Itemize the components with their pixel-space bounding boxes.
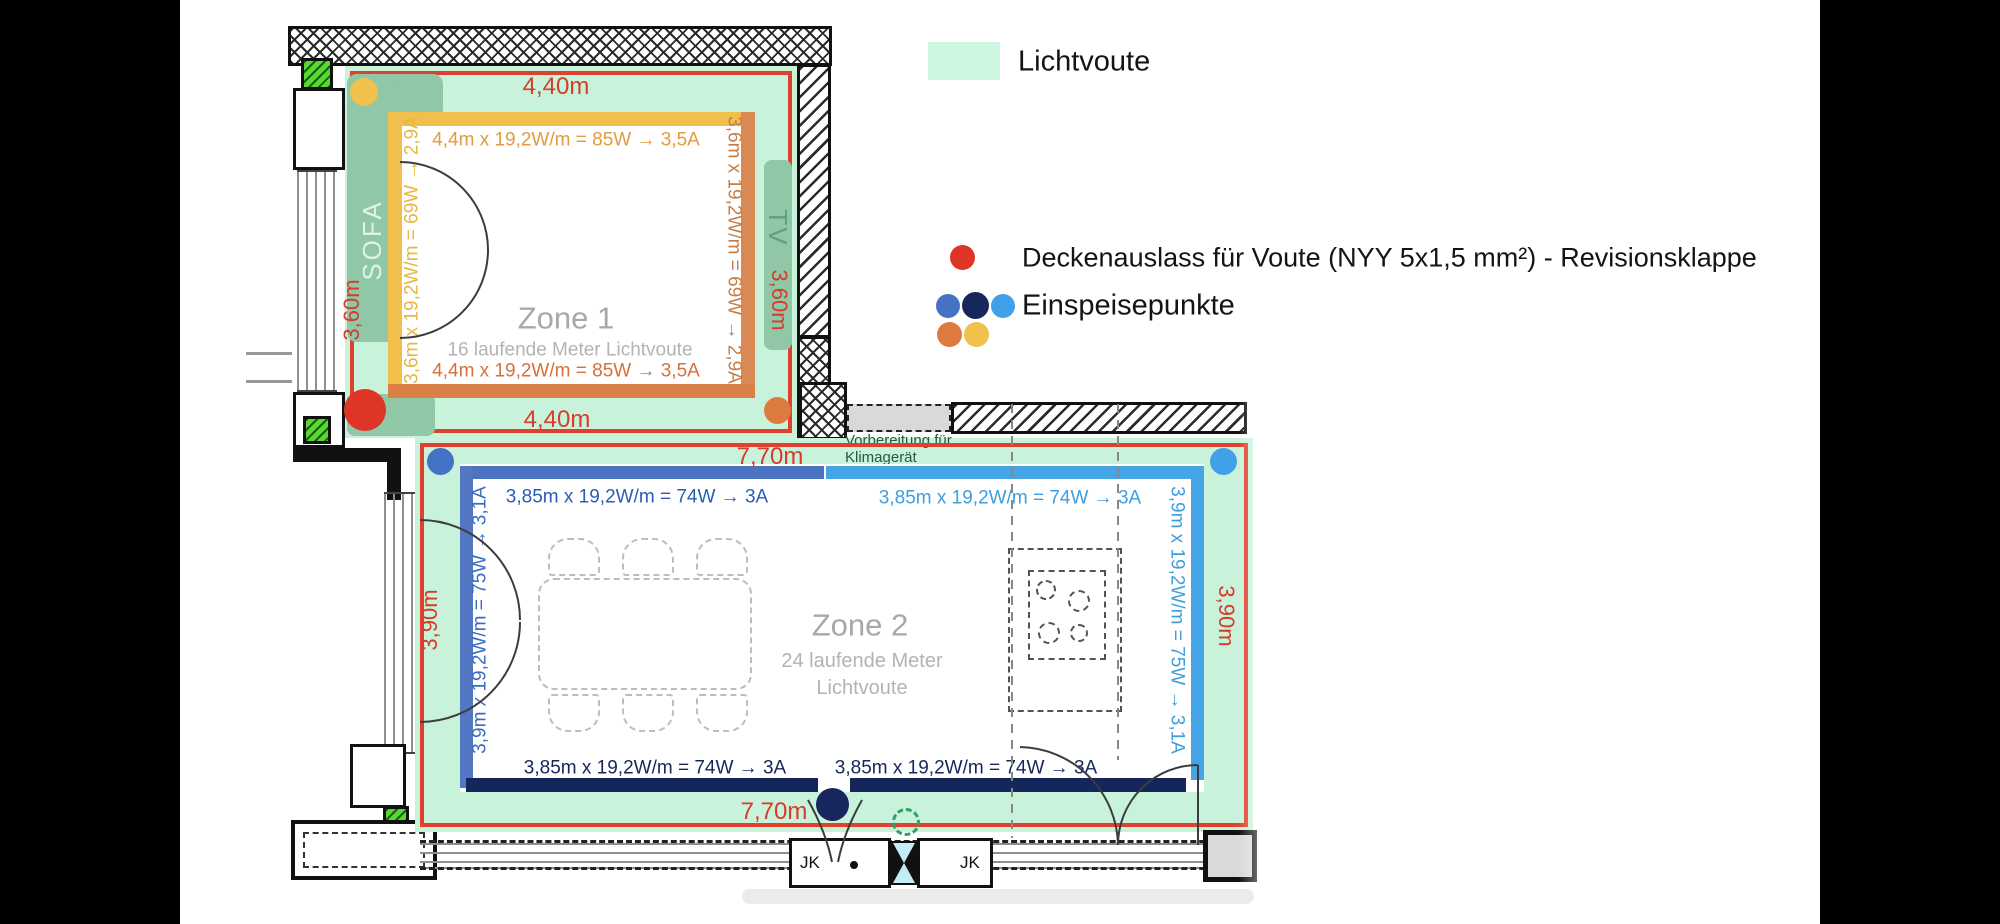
dining-table <box>538 578 752 690</box>
jk-label-1: JK <box>800 853 820 873</box>
bowtie-marker <box>891 841 917 885</box>
zone1-led-top <box>388 112 755 126</box>
zone2-subtitle-line2: Lichtvoute <box>816 678 907 698</box>
legend-deckenauslass-dot <box>950 245 975 270</box>
einspeisepunkt-orange <box>764 397 791 424</box>
zone2-led-bottom-right <box>850 778 1186 792</box>
chair <box>696 538 748 576</box>
zone2-subtitle-line1: 24 laufende Meter <box>781 651 942 671</box>
zone2-led-right <box>1191 466 1204 780</box>
sofa-label: SOFA <box>359 199 385 280</box>
zone2-power-top-right: 3,85m x 19,2W/m = 74W → 3A <box>879 489 1141 508</box>
zone2-left-window <box>384 492 416 754</box>
zone2-title: Zone 2 <box>812 610 909 641</box>
jk-box-2: JK <box>917 838 993 888</box>
legend-lichtvoute-swatch <box>928 42 1000 80</box>
zone1-power-bottom: 4,4m x 19,2W/m = 85W → 3,5A <box>432 362 700 381</box>
chair <box>622 694 674 732</box>
zone1-dim-left: 3,60m <box>341 279 363 340</box>
zone1-dim-bottom: 4,40m <box>524 408 591 432</box>
wall-tick-1 <box>246 352 292 355</box>
legend-feed-dot-lightblue <box>991 294 1015 318</box>
zone1-dim-right: 3,60m <box>768 269 790 330</box>
dashed-circle-marker <box>892 808 920 836</box>
zone1-left-closet <box>293 88 345 170</box>
burner <box>1038 622 1060 644</box>
einspeisepunkt-yellow <box>350 78 378 106</box>
zone1-power-left: 3,6m x 19,2W/m = 69W → 2,9A <box>403 116 422 384</box>
step-wall-h <box>293 448 401 462</box>
zone1-power-right: 3,6m x 19,2W/m = 69W → 2,9A <box>725 116 744 384</box>
burner <box>1070 624 1088 642</box>
zone2-power-bottom-left: 3,85m x 19,2W/m = 74W → 3A <box>524 759 786 778</box>
zone2-left-closet <box>350 744 406 808</box>
chair <box>548 694 600 732</box>
wall-tick-2 <box>246 380 292 383</box>
zone2-led-top-right <box>826 466 1204 479</box>
column-top-left <box>301 58 333 90</box>
einspeisepunkt-navy <box>816 788 849 821</box>
zone2-top-wall <box>951 402 1247 434</box>
zone1-dim-top: 4,40m <box>523 75 590 99</box>
burner <box>1036 580 1056 600</box>
column-mid-left <box>303 416 331 444</box>
zone2-power-right: 3,9m x 19,2W/m = 75W → 3,1A <box>1168 486 1187 754</box>
legend-feed-dot-yellow <box>964 322 989 347</box>
legend-feed-dot-blue <box>936 294 960 318</box>
zone1-title: Zone 1 <box>518 303 615 334</box>
zone2-dim-top: 7,70m <box>737 445 804 469</box>
jk-box-1: JK <box>789 838 891 888</box>
plan-fade <box>1238 380 1308 890</box>
tv-label: TV <box>765 209 791 246</box>
red-border-patch <box>843 443 958 447</box>
zone1-led-bottom <box>388 384 755 398</box>
legend-feed-dot-navy <box>962 292 989 319</box>
letterbox-left <box>0 0 180 924</box>
zone2-led-bottom-left <box>466 778 818 792</box>
door-pivot-dot <box>850 861 858 869</box>
legend-einspeisepunkte-label: Einspeisepunkte <box>1022 292 1235 321</box>
progress-bar[interactable] <box>742 889 1254 904</box>
jk-label-2: JK <box>960 853 980 873</box>
chimney-column <box>799 382 847 440</box>
zone1-power-top: 4,4m x 19,2W/m = 85W → 3,5A <box>432 131 700 150</box>
einspeisepunkt-blue <box>427 448 454 475</box>
burner <box>1068 590 1090 612</box>
chair <box>696 694 748 732</box>
zone1-top-wall <box>288 26 832 66</box>
letterbox-right <box>1820 0 2000 924</box>
legend-deckenauslass-label: Deckenauslass für Voute (NYY 5x1,5 mm²) … <box>1022 245 1757 272</box>
zone2-dim-bottom: 7,70m <box>741 800 808 824</box>
zone1-right-wall <box>797 64 831 338</box>
bowtie-icon <box>893 843 915 883</box>
zone2-power-bottom-right: 3,85m x 19,2W/m = 74W → 3A <box>835 759 1097 778</box>
klimageraet-prep-box <box>847 404 951 432</box>
chair <box>548 538 600 576</box>
zone2-dim-right: 3,90m <box>1215 585 1237 646</box>
zone1-left-window <box>297 170 337 392</box>
zone1-subtitle: 16 laufende Meter Lichtvoute <box>447 341 692 360</box>
floorplan-slide: 4,40m 4,40m SOFA 3,60m TV 3,60m 4,4m x 1… <box>0 0 2000 924</box>
legend-lichtvoute-label: Lichtvoute <box>1018 48 1150 77</box>
zone1-led-left <box>388 112 402 398</box>
legend-feed-dot-orange <box>937 322 962 347</box>
einspeisepunkt-lightblue <box>1210 448 1237 475</box>
zone2-dim-left: 3,90m <box>419 589 441 650</box>
zone2-power-left: 3,9m x 19,2W/m = 75W → 3,1A <box>471 486 490 754</box>
deckenauslass-dot <box>344 389 386 431</box>
klimageraet-note: Vorbereitung für Klimagerät <box>845 432 952 466</box>
zone2-power-top-left: 3,85m x 19,2W/m = 74W → 3A <box>506 488 768 507</box>
chair <box>622 538 674 576</box>
